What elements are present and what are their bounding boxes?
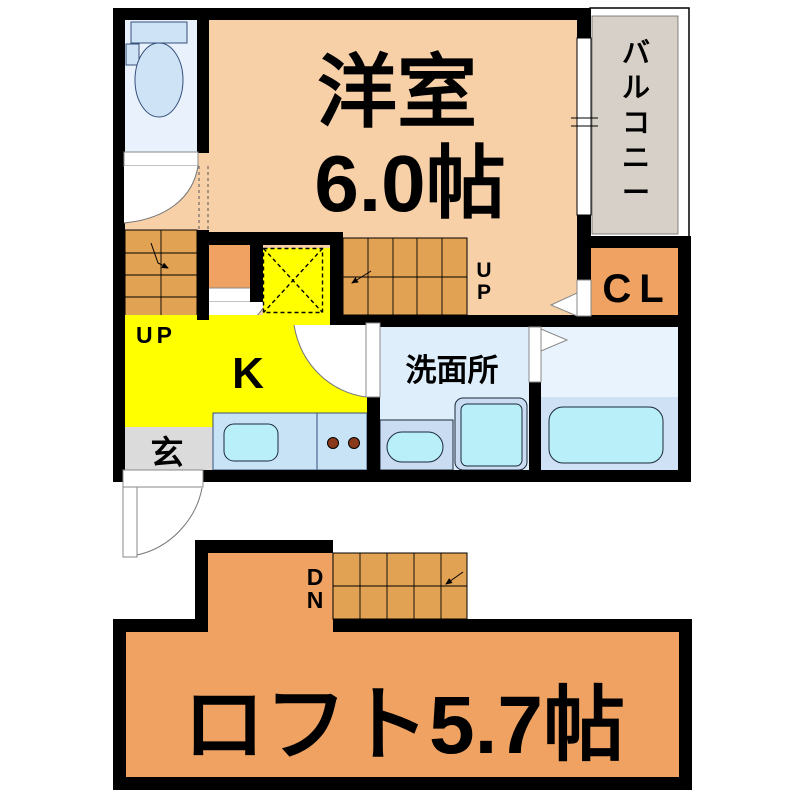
kitchen-sink (224, 424, 278, 461)
label-balcony-char: コ (622, 107, 650, 138)
loft-wall-notch-left (195, 540, 208, 632)
loft-wall-top-right (333, 619, 692, 632)
storage-door (203, 288, 252, 302)
wall-washroom-west (367, 397, 380, 470)
washing-machine-drum (461, 404, 522, 466)
wall-washroom-top (330, 315, 678, 327)
wall-toilet (197, 8, 209, 153)
label-washroom: 洗面所 (406, 353, 499, 388)
label-balcony-char: ー (622, 177, 650, 208)
label-up-right-char: P (477, 281, 491, 304)
wall-storage (250, 245, 263, 302)
wall-corner-stub (577, 20, 591, 38)
wall-stairs-left (330, 238, 343, 327)
wall-right (678, 236, 691, 482)
wall-below-window (577, 215, 591, 280)
label-loft: ロフト5.7帖 (183, 680, 625, 771)
loft-wall-notch-top (195, 540, 333, 553)
label-balcony-char: バ (622, 37, 650, 68)
label-balcony-char: ル (622, 72, 650, 103)
entrance-door-leaf (123, 487, 137, 557)
label-up-right-char: U (476, 259, 491, 282)
label-western-room-size: 6.0帖 (314, 139, 505, 228)
wall-kitchen-top (197, 232, 343, 245)
label-closet: CL (602, 267, 671, 311)
bath-door (529, 327, 541, 382)
stove-burner (349, 438, 360, 449)
washbasin (387, 432, 443, 462)
wall-bath (529, 382, 541, 470)
loft-wall-left (113, 619, 126, 790)
label-entrance: 玄 (151, 434, 184, 471)
washroom-door (366, 323, 380, 397)
wall-top (113, 8, 591, 20)
storage-box (209, 245, 252, 288)
toilet-bowl (135, 43, 183, 117)
entrance-door-opening (123, 470, 203, 487)
stove-burner (328, 438, 339, 449)
loft-wall-right (679, 619, 692, 790)
entrance-door-arc (137, 488, 202, 555)
label-kitchen: K (232, 349, 264, 398)
label-balcony-char: ニ (622, 142, 650, 173)
loft-landing-gap (208, 619, 333, 639)
loft-wall-top-left (113, 619, 208, 632)
wall-below-balcony (591, 236, 691, 248)
kitchen-upper-area (263, 248, 330, 315)
toilet-paper-holder (126, 44, 139, 65)
floorplan-page: 洋室 6.0帖 バ ル コ ニ ー CL UP U P K 玄 洗面所 D N … (0, 0, 800, 800)
label-western-room: 洋室 (317, 48, 477, 137)
toilet-tank (131, 22, 187, 43)
floorplan-drawing: 洋室 6.0帖 バ ル コ ニ ー CL UP U P K 玄 洗面所 D N … (0, 0, 800, 800)
loft-wall-bottom (113, 777, 692, 790)
toilet-door (124, 152, 198, 166)
wall-left (113, 8, 125, 482)
label-up-left: UP (136, 322, 176, 348)
label-down-char: N (307, 587, 324, 613)
closet-door (577, 280, 591, 316)
bathtub (549, 407, 663, 463)
